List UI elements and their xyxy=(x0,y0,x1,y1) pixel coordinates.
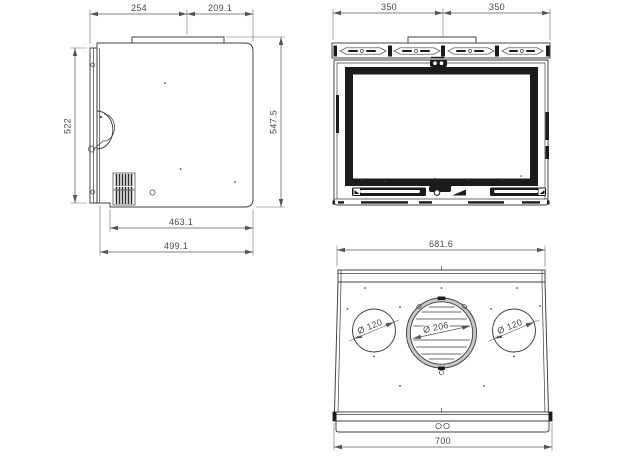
side-hinge-cam xyxy=(89,111,115,152)
top-view xyxy=(333,246,552,451)
side-screw-hole xyxy=(150,190,155,195)
drawing-linework xyxy=(0,0,624,460)
top-extension-lines xyxy=(334,246,552,451)
side-vent-grille xyxy=(113,173,135,205)
top-dim-width-front: 700 xyxy=(435,437,451,446)
front-bottom-vent-right xyxy=(490,188,546,197)
front-right-hinge-mark xyxy=(546,112,550,140)
front-door-glass-frame xyxy=(345,67,538,186)
top-front-band xyxy=(333,408,552,421)
side-dim-height-total: 547.5 xyxy=(270,110,279,134)
top-dim-width-rear: 681.6 xyxy=(429,240,453,249)
top-front-fascia xyxy=(336,421,549,432)
front-view xyxy=(332,9,550,205)
front-left-hinge-mark xyxy=(336,95,339,133)
front-bottom-strip xyxy=(333,199,550,205)
top-flue-collar xyxy=(407,297,477,375)
front-extension-lines xyxy=(333,9,550,40)
side-door-profile xyxy=(90,48,97,203)
top-dimension-lines xyxy=(334,250,552,447)
front-louver-band xyxy=(332,43,550,58)
front-bottom-vent-left xyxy=(352,188,426,197)
side-dim-top-front: 254 xyxy=(131,4,147,13)
side-dim-height-door: 522 xyxy=(64,118,73,134)
side-dim-depth-body: 463.1 xyxy=(169,218,193,227)
side-dim-depth-total: 499.1 xyxy=(164,242,188,251)
front-dim-width-right: 350 xyxy=(489,3,505,12)
top-rear-band xyxy=(338,266,545,282)
side-body-outline xyxy=(97,43,253,207)
front-flue-collar xyxy=(408,37,476,43)
front-dim-width-left: 350 xyxy=(381,3,397,12)
technical-drawing-canvas: 254 209.1 522 547.5 463.1 499.1 350 350 … xyxy=(0,0,624,460)
side-dim-top-rear: 209.1 xyxy=(208,4,232,13)
side-flue-collar xyxy=(132,37,224,43)
